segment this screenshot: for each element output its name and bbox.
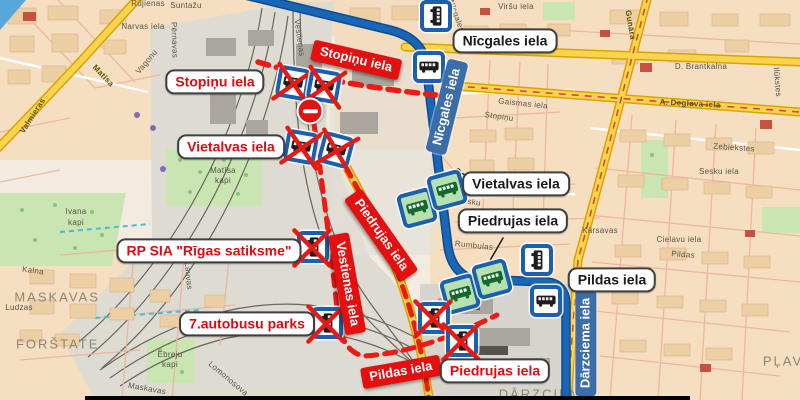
- callout-rigas-satiksme: RP SIA "Rīgas satiksme": [116, 238, 301, 263]
- closed-bus-stop-icon: [282, 128, 319, 165]
- callout-nicgales-iela: Nīcgales iela: [453, 28, 558, 53]
- callout-piedrujas-iela-bottom: Piedrujas iela: [440, 358, 550, 383]
- callout-vietalvas-iela: Vietalvas iela: [462, 171, 570, 196]
- callout-vietalvas-iela-left: Vietalvas iela: [177, 134, 285, 159]
- closed-bus-stop-icon: [311, 307, 343, 339]
- bus-stop-icon: [521, 244, 553, 276]
- callout-autobusu-parks: 7.autobusu parks: [179, 311, 315, 336]
- callout-stopinu-iela: Stopiņu iela: [165, 69, 264, 94]
- bus-stop-icon: [413, 51, 445, 83]
- no-entry-icon: [297, 98, 324, 125]
- bus-stop-icon: [530, 285, 562, 317]
- bus-stop-icon: [420, 0, 452, 32]
- closed-bus-stop-icon: [446, 325, 478, 357]
- bottom-black-bar: [85, 396, 690, 400]
- callout-piedrujas-iela: Piedrujas iela: [458, 208, 568, 233]
- route-label-darzciema-iela: Dārzciema iela: [575, 290, 596, 396]
- closed-bus-stop-icon: [297, 231, 329, 263]
- callout-pildas-iela: Pildas iela: [568, 267, 656, 292]
- detour-map: Rūjienas Suntažu Narvas iela Pērnavas Va…: [0, 0, 800, 400]
